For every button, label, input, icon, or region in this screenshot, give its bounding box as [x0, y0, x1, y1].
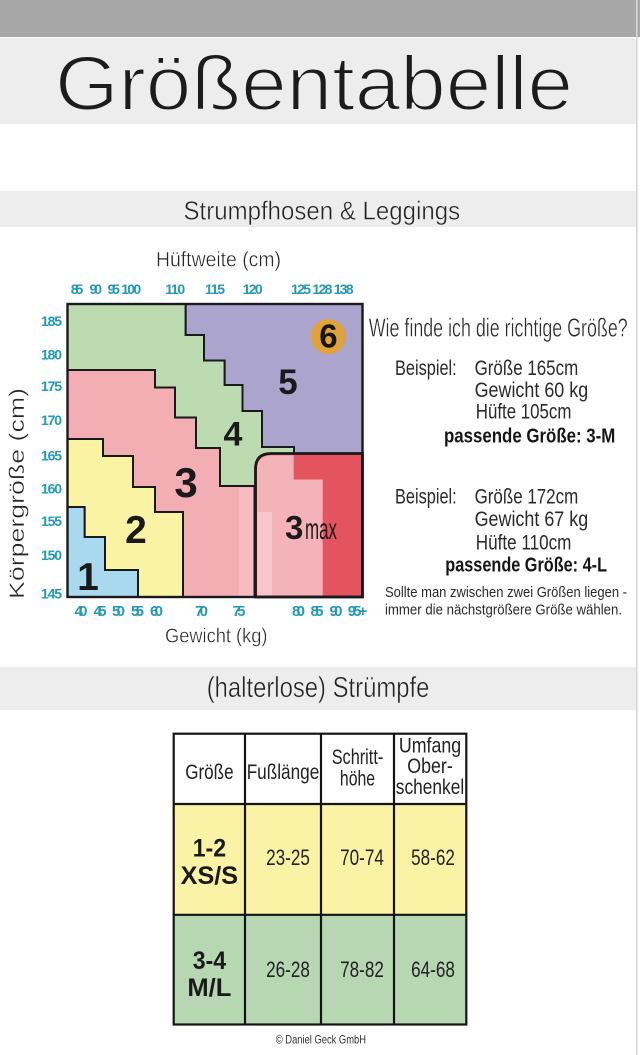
svg-text:50: 50	[112, 603, 125, 620]
svg-text:70-74: 70-74	[340, 845, 384, 870]
svg-text:160: 160	[41, 480, 62, 496]
svg-text:120: 120	[243, 281, 263, 297]
svg-text:58-62: 58-62	[411, 845, 455, 870]
svg-text:128: 128	[312, 281, 332, 297]
svg-text:1: 1	[77, 556, 99, 599]
svg-text:165: 165	[41, 448, 62, 464]
svg-text:85: 85	[71, 281, 84, 297]
svg-text:26-28: 26-28	[266, 957, 310, 982]
svg-text:Gewicht 67 kg: Gewicht 67 kg	[475, 508, 589, 531]
svg-text:Sollte man zwischen zwei Größe: Sollte man zwischen zwei Größen liegen -	[385, 584, 627, 601]
svg-text:60: 60	[150, 603, 163, 620]
svg-text:1-2: 1-2	[193, 835, 226, 863]
svg-text:125: 125	[291, 281, 311, 297]
svg-text:145: 145	[41, 586, 62, 602]
svg-text:150: 150	[41, 547, 62, 563]
svg-text:4: 4	[224, 416, 243, 454]
svg-text:Strumpfhosen & Leggings: Strumpfhosen & Leggings	[184, 196, 461, 226]
svg-text:90: 90	[90, 281, 103, 297]
svg-text:M/L: M/L	[187, 974, 231, 1002]
svg-text:Gewicht 60 kg: Gewicht 60 kg	[475, 379, 589, 402]
svg-text:170: 170	[41, 412, 62, 428]
svg-text:Ober-: Ober-	[407, 755, 453, 778]
svg-text:Hüfte 105cm: Hüfte 105cm	[476, 401, 572, 424]
svg-text:90: 90	[330, 603, 343, 620]
svg-text:immer die nächstgrößere Größe: immer die nächstgrößere Größe wählen.	[385, 602, 622, 619]
svg-text:Größentabelle: Größentabelle	[55, 41, 573, 127]
svg-text:175: 175	[41, 378, 62, 394]
svg-text:2: 2	[125, 509, 147, 552]
svg-text:XS/S: XS/S	[181, 862, 238, 890]
svg-text:max: max	[305, 513, 337, 546]
svg-text:78-82: 78-82	[340, 957, 384, 982]
svg-text:85: 85	[311, 603, 324, 620]
svg-text:Größe: Größe	[185, 761, 233, 784]
svg-text:passende Größe: 4-L: passende Größe: 4-L	[445, 555, 607, 577]
svg-text:100: 100	[121, 281, 141, 297]
svg-text:Hüfte 110cm: Hüfte 110cm	[476, 532, 572, 555]
svg-text:75: 75	[233, 603, 246, 620]
svg-text:23-25: 23-25	[266, 845, 310, 870]
svg-text:schenkel: schenkel	[396, 776, 464, 799]
svg-text:Größe 172cm: Größe 172cm	[475, 486, 579, 509]
svg-text:110: 110	[165, 281, 185, 297]
svg-text:180: 180	[41, 347, 62, 363]
svg-text:Schritt-: Schritt-	[332, 746, 384, 769]
svg-text:45: 45	[94, 603, 107, 620]
svg-text:115: 115	[205, 281, 225, 297]
svg-text:3-4: 3-4	[193, 947, 226, 975]
svg-text:Körpergröße (cm): Körpergröße (cm)	[6, 388, 29, 599]
svg-text:höhe: höhe	[340, 767, 375, 790]
svg-text:Fußlänge: Fußlänge	[247, 761, 320, 784]
svg-text:Hüftweite (cm): Hüftweite (cm)	[156, 249, 281, 272]
svg-text:Beispiel:: Beispiel:	[395, 357, 457, 380]
svg-text:185: 185	[41, 313, 62, 329]
svg-text:© Daniel Geck GmbH: © Daniel Geck GmbH	[276, 1033, 366, 1047]
svg-text:95: 95	[107, 281, 120, 297]
svg-text:3: 3	[285, 509, 303, 546]
svg-text:155: 155	[41, 513, 62, 529]
svg-text:(halterlose) Strümpfe: (halterlose) Strümpfe	[207, 672, 430, 704]
svg-text:Umfang: Umfang	[399, 735, 461, 758]
svg-text:Wie finde ich die richtige Grö: Wie finde ich die richtige Größe?	[369, 313, 628, 343]
svg-text:138: 138	[334, 281, 354, 297]
svg-text:3: 3	[174, 459, 197, 506]
svg-text:Größe 165cm: Größe 165cm	[475, 357, 579, 380]
svg-text:40: 40	[75, 603, 88, 620]
svg-text:5: 5	[278, 363, 297, 402]
svg-text:80: 80	[292, 603, 305, 620]
svg-text:Beispiel:: Beispiel:	[395, 486, 457, 509]
svg-text:6: 6	[319, 318, 337, 355]
svg-text:Gewicht (kg): Gewicht (kg)	[165, 625, 268, 648]
svg-text:95+: 95+	[348, 603, 368, 620]
svg-text:55: 55	[131, 603, 144, 620]
svg-text:64-68: 64-68	[411, 957, 455, 982]
svg-text:70: 70	[195, 603, 208, 620]
svg-text:passende Größe: 3-M: passende Größe: 3-M	[444, 425, 615, 447]
